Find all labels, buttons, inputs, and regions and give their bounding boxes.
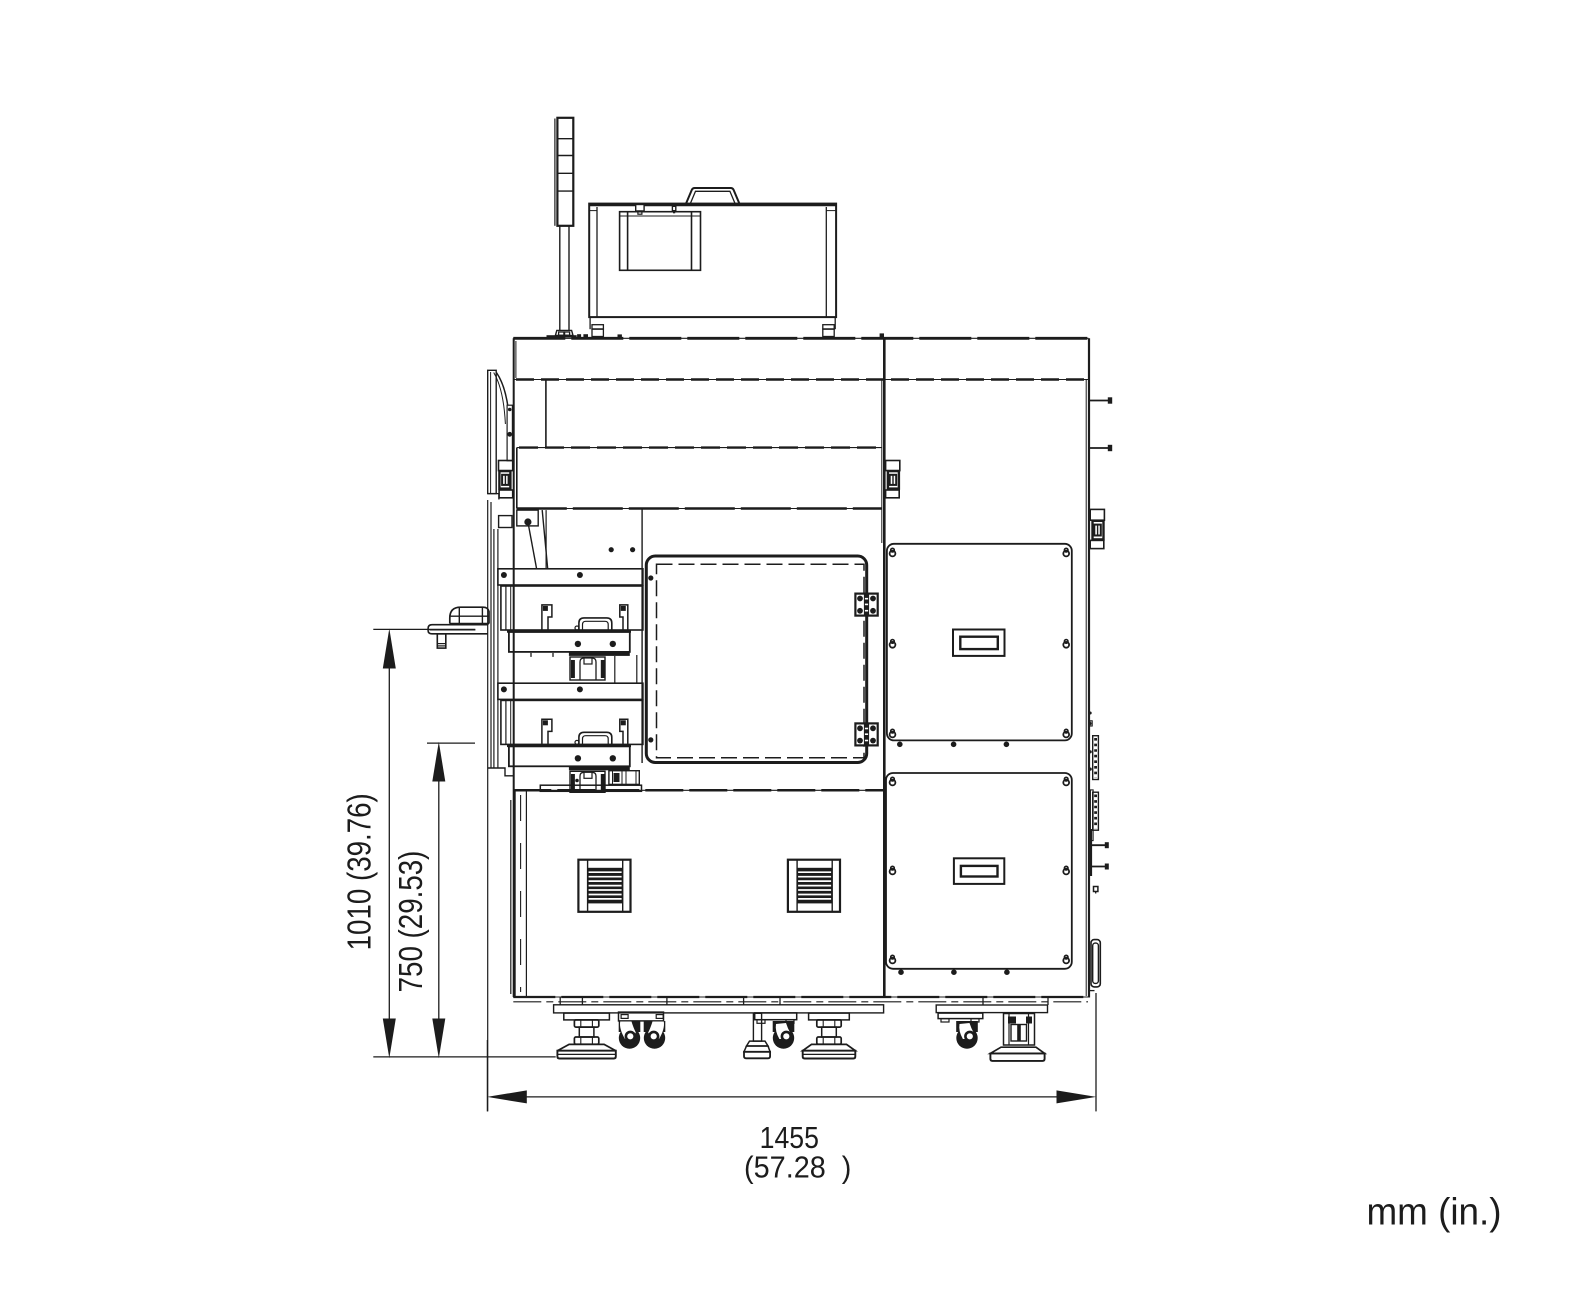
svg-text:1010 (39.76): 1010 (39.76) bbox=[341, 793, 378, 950]
svg-text:mm (in.): mm (in.) bbox=[1366, 1190, 1501, 1233]
svg-text:(57.28 ): (57.28 ) bbox=[744, 1151, 851, 1185]
svg-text:750 (29.53): 750 (29.53) bbox=[393, 851, 430, 993]
